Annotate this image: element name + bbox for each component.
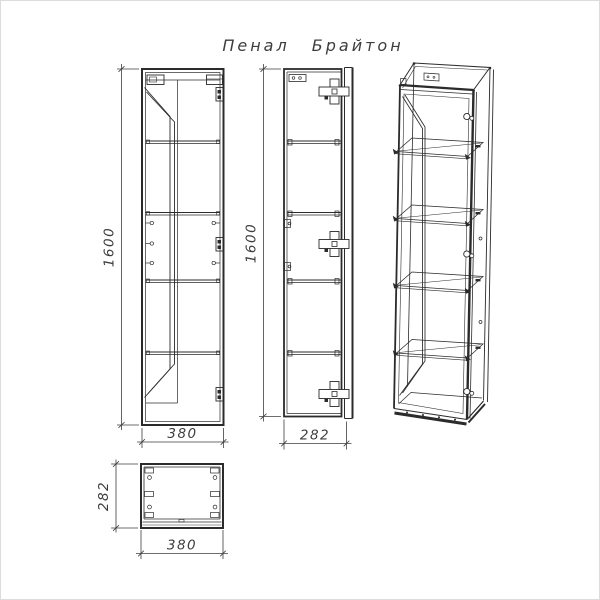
technical-drawing-sheet: Пенал Брайтон bbox=[0, 0, 600, 600]
top-view bbox=[141, 464, 223, 528]
dim-label-side-depth: 282 bbox=[300, 428, 330, 444]
dim-label-side-height: 1600 bbox=[244, 223, 260, 263]
dim-top-width: 380 bbox=[136, 530, 228, 559]
drawing-canvas: Пенал Брайтон bbox=[1, 1, 600, 600]
front-shelf-lines bbox=[146, 140, 221, 355]
dim-label-top-depth: 282 bbox=[96, 481, 112, 511]
dim-label-front-height: 1600 bbox=[102, 227, 118, 267]
glass-shelf bbox=[393, 138, 483, 160]
dim-label-front-width: 380 bbox=[167, 426, 197, 442]
front-carcass-outline bbox=[142, 69, 224, 425]
front-shelf-pins bbox=[146, 221, 221, 264]
dim-side-depth: 282 bbox=[279, 420, 352, 450]
glass-door-outline bbox=[399, 94, 470, 414]
isometric-view bbox=[393, 62, 494, 424]
side-mounting-bracket bbox=[289, 75, 306, 82]
dim-top-depth: 282 bbox=[96, 460, 138, 533]
dim-front-width: 380 bbox=[137, 426, 229, 448]
top-corner-fittings bbox=[145, 468, 220, 522]
top-door-panel bbox=[143, 522, 222, 525]
drawing-title: Пенал Брайтон bbox=[222, 36, 403, 55]
dim-label-top-width: 380 bbox=[167, 538, 197, 554]
front-view bbox=[142, 69, 224, 425]
side-cam-fittings bbox=[285, 220, 291, 271]
glass-shelf bbox=[393, 205, 483, 227]
dim-front-height: 1600 bbox=[102, 64, 140, 430]
side-view bbox=[284, 68, 353, 419]
dim-side-height: 1600 bbox=[244, 64, 282, 422]
